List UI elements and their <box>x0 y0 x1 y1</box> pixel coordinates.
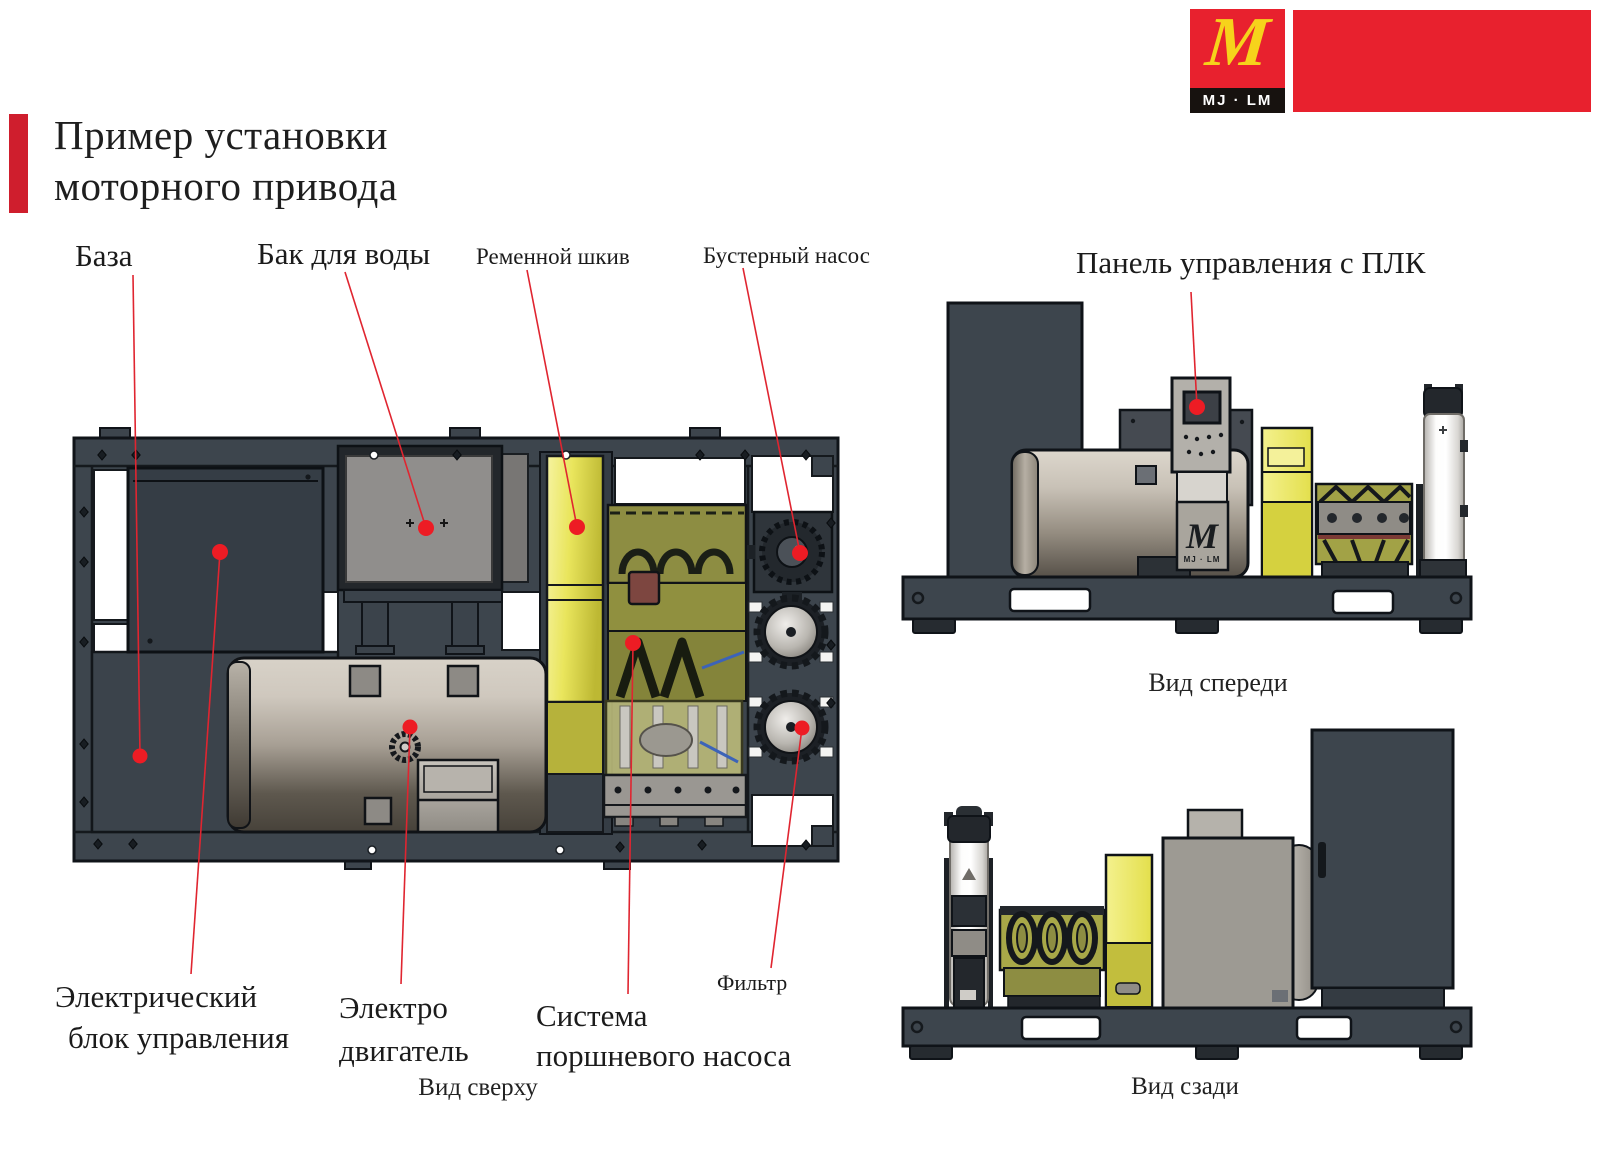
label-electrical-unit-line1: Электрический <box>55 976 289 1017</box>
label-booster-pump: Бустерный насос <box>703 243 870 269</box>
front-view-plc-panel: M MJ · LM <box>1172 378 1230 570</box>
front-view-drawing: M MJ · LM <box>898 296 1478 640</box>
label-piston-pump: Система поршневого насоса <box>536 996 791 1076</box>
label-electrical-unit-line2: блок управления <box>55 1017 289 1058</box>
top-view-drawing <box>70 424 850 872</box>
top-view-belt-pulley <box>540 452 612 834</box>
label-piston-pump-line2: поршневого насоса <box>536 1036 791 1076</box>
rear-view-cabinet <box>1312 730 1453 1008</box>
rear-view-filter <box>944 806 993 1008</box>
rear-view-drawing <box>895 702 1480 1064</box>
logo-red-banner <box>1293 10 1591 112</box>
label-belt-pulley: Ременной шкив <box>476 244 630 270</box>
front-view-piston-pump <box>1316 484 1412 580</box>
logo-square: M MJ · LM <box>1190 9 1285 113</box>
front-view-belt-guard <box>1262 428 1312 577</box>
rear-view-belt-guard <box>1106 855 1152 1007</box>
label-base: База <box>75 238 133 274</box>
caption-front-view: Вид спереди <box>1148 668 1287 698</box>
label-electric-motor-line1: Электро <box>339 986 469 1029</box>
rear-view-base-frame <box>903 1008 1471 1059</box>
label-plc-panel: Панель управления с ПЛК <box>1076 245 1425 281</box>
top-view-booster-pump <box>747 512 832 602</box>
page-title-line1: Пример установки <box>54 110 398 161</box>
brand-name: MJ · LM <box>1190 88 1285 113</box>
label-electric-motor-line2: двигатель <box>339 1029 469 1072</box>
brand-monogram-icon: M <box>1186 3 1289 83</box>
caption-top-view: Вид сверху <box>418 1074 537 1102</box>
page-title-line2: моторного привода <box>54 161 398 212</box>
top-view-electric-motor <box>228 658 546 832</box>
top-view-piston-pump <box>604 505 746 826</box>
label-piston-pump-line1: Система <box>536 996 791 1036</box>
label-water-tank: Бак для воды <box>257 236 430 272</box>
front-view-base-frame <box>903 577 1471 633</box>
brand-logo: M MJ · LM <box>1190 9 1592 113</box>
motor-monogram-icon: M <box>1185 516 1220 556</box>
motor-brand-mark: MJ · LM <box>1184 555 1221 564</box>
label-electric-motor: Электро двигатель <box>339 986 469 1072</box>
title-accent-bar <box>9 114 28 213</box>
page-title: Пример установки моторного привода <box>54 110 398 212</box>
label-electrical-unit: Электрический блок управления <box>55 976 289 1058</box>
rear-view-electric-motor <box>1163 810 1293 1008</box>
rear-view-piston-pump <box>1000 906 1104 1010</box>
label-filter: Фильтр <box>717 970 787 996</box>
page: Пример установки моторного привода M MJ … <box>0 0 1600 1163</box>
front-view-filter <box>1416 384 1468 578</box>
caption-rear-view: Вид сзади <box>1131 1073 1239 1101</box>
